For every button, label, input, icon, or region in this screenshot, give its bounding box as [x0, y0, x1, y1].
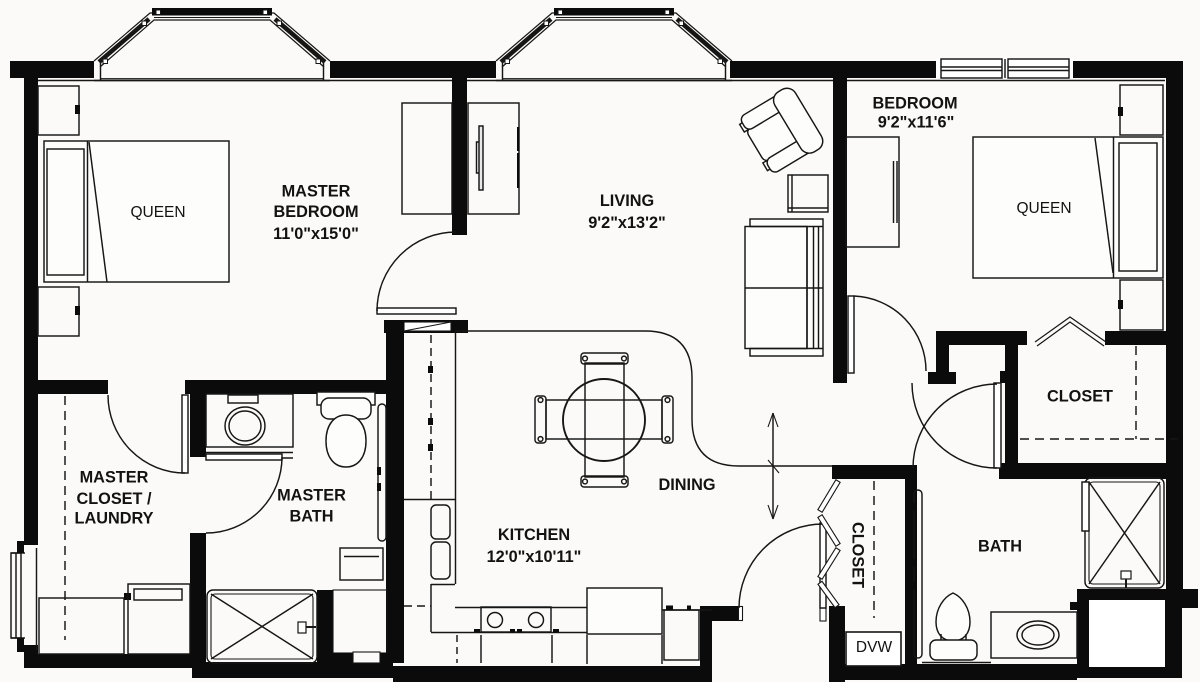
svg-text:BEDROOM: BEDROOM [273, 203, 358, 221]
svg-text:DVW: DVW [856, 639, 893, 656]
svg-text:MASTER: MASTER [282, 183, 351, 201]
svg-text:LAUNDRY: LAUNDRY [75, 510, 154, 528]
svg-text:BATH: BATH [289, 508, 333, 526]
svg-text:QUEEN: QUEEN [130, 204, 185, 221]
svg-text:MASTER: MASTER [277, 487, 346, 505]
svg-text:CLOSET /: CLOSET / [76, 490, 152, 508]
svg-text:CLOSET: CLOSET [849, 522, 867, 588]
svg-text:DINING: DINING [659, 476, 716, 494]
svg-text:CLOSET: CLOSET [1047, 388, 1113, 406]
svg-text:9'2"x11'6": 9'2"x11'6" [878, 114, 955, 132]
svg-text:11'0"x15'0": 11'0"x15'0" [273, 225, 359, 243]
svg-text:LIVING: LIVING [600, 192, 654, 210]
svg-text:MASTER: MASTER [80, 469, 149, 487]
svg-text:9'2"x13'2": 9'2"x13'2" [588, 214, 666, 232]
svg-text:12'0"x10'11": 12'0"x10'11" [487, 548, 582, 566]
svg-text:QUEEN: QUEEN [1016, 200, 1071, 217]
svg-text:KITCHEN: KITCHEN [498, 526, 570, 544]
svg-text:BATH: BATH [978, 538, 1022, 556]
svg-text:BEDROOM: BEDROOM [872, 95, 957, 113]
